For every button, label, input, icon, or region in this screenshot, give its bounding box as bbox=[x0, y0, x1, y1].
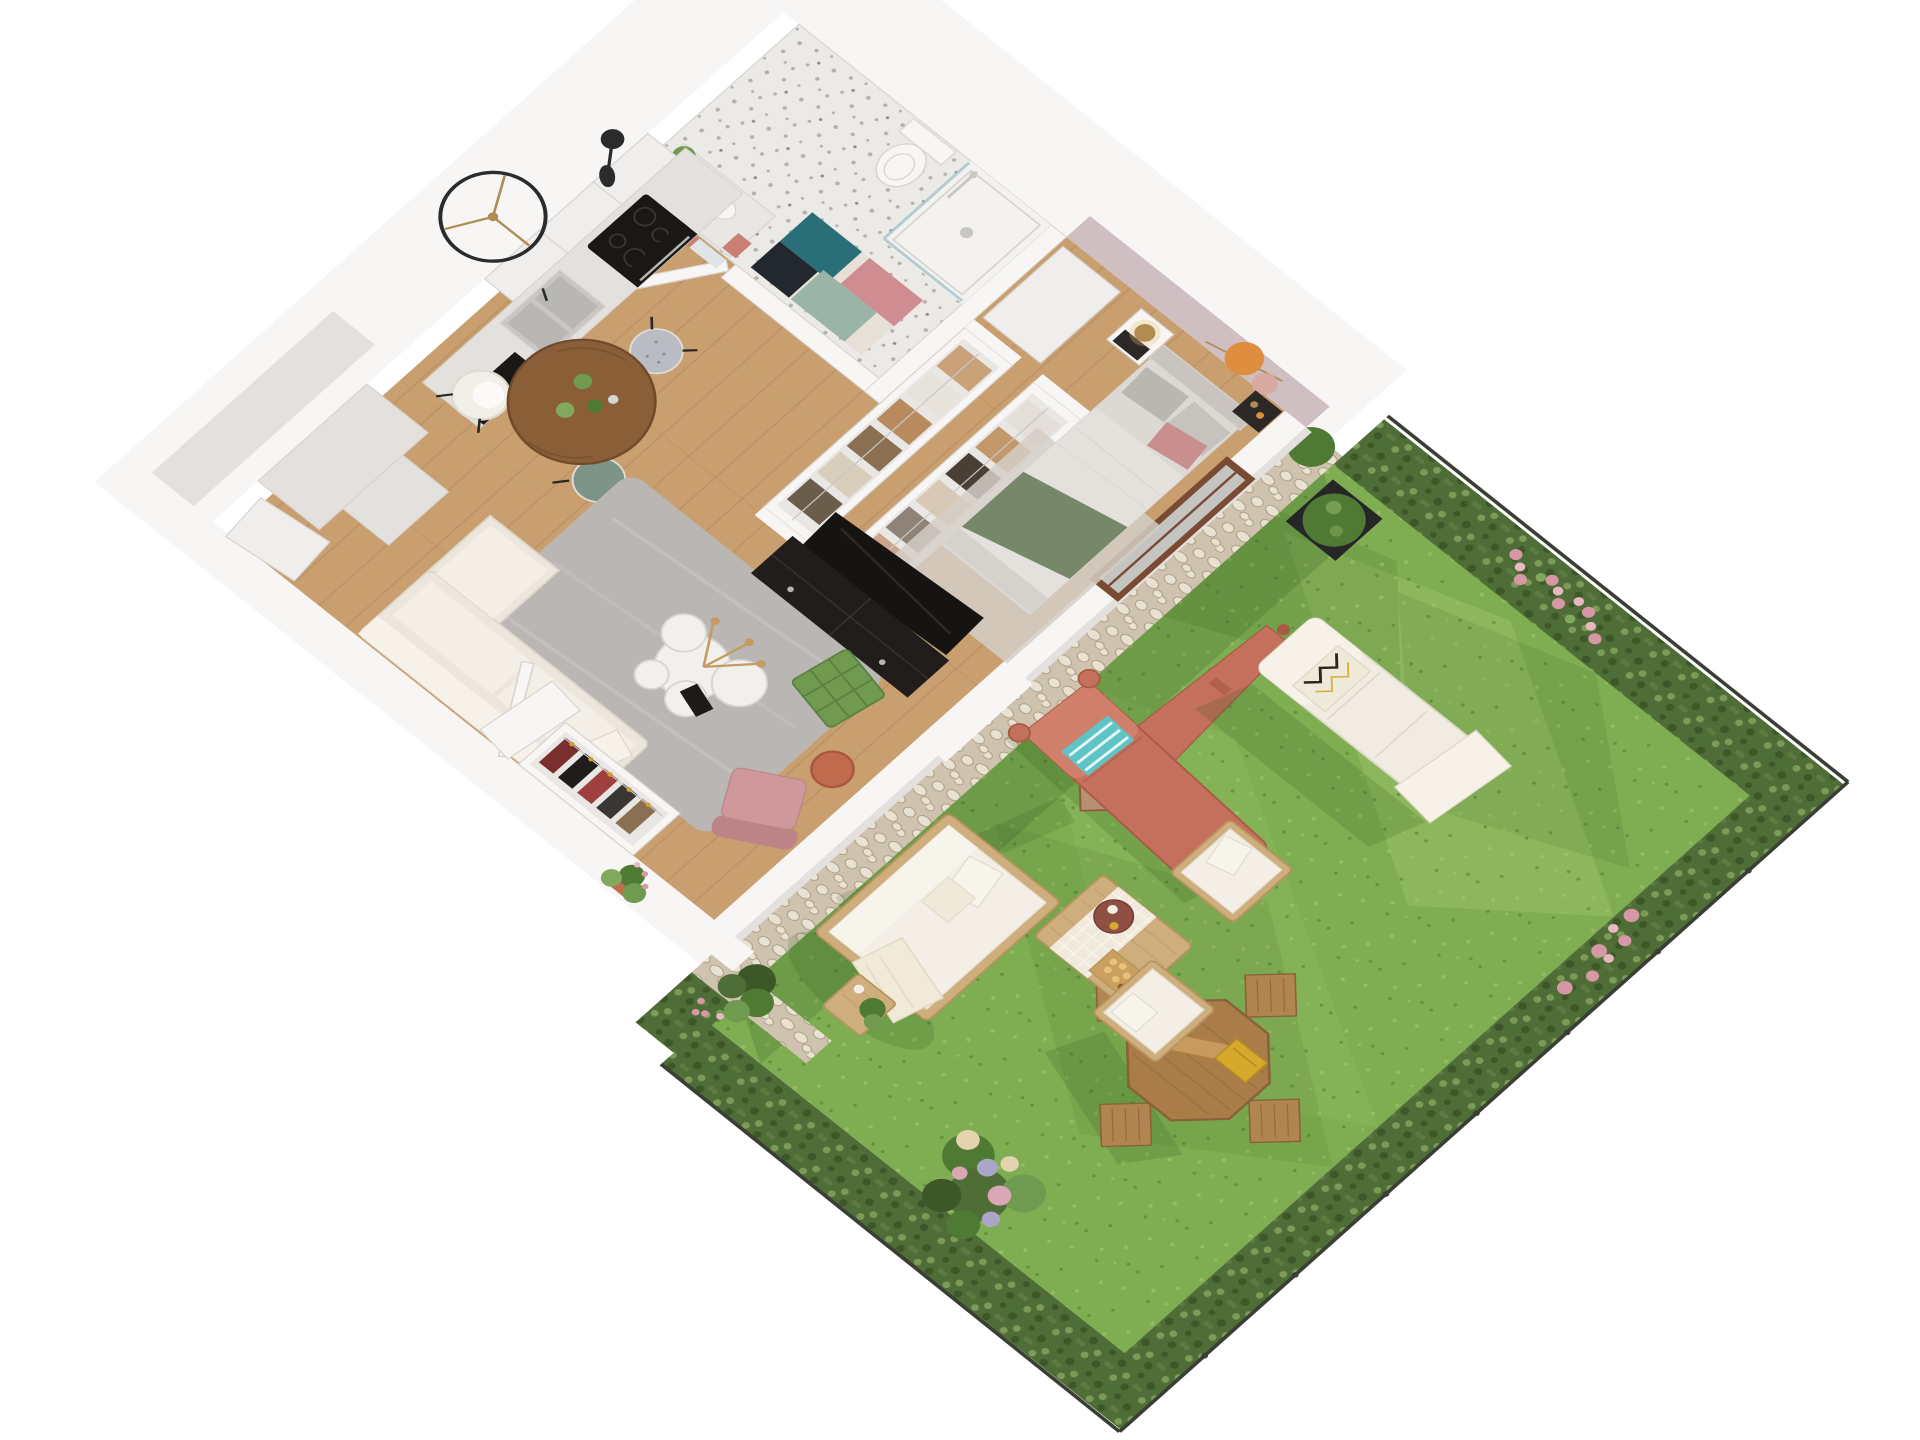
floor-plan-render bbox=[0, 0, 1920, 1440]
folding-chair-north bbox=[1245, 974, 1296, 1017]
folding-chair-south bbox=[1100, 1103, 1151, 1146]
folding-chair-east bbox=[1249, 1099, 1300, 1142]
plan-space bbox=[14, 0, 1886, 1434]
floor-plan-svg bbox=[0, 0, 1920, 1440]
